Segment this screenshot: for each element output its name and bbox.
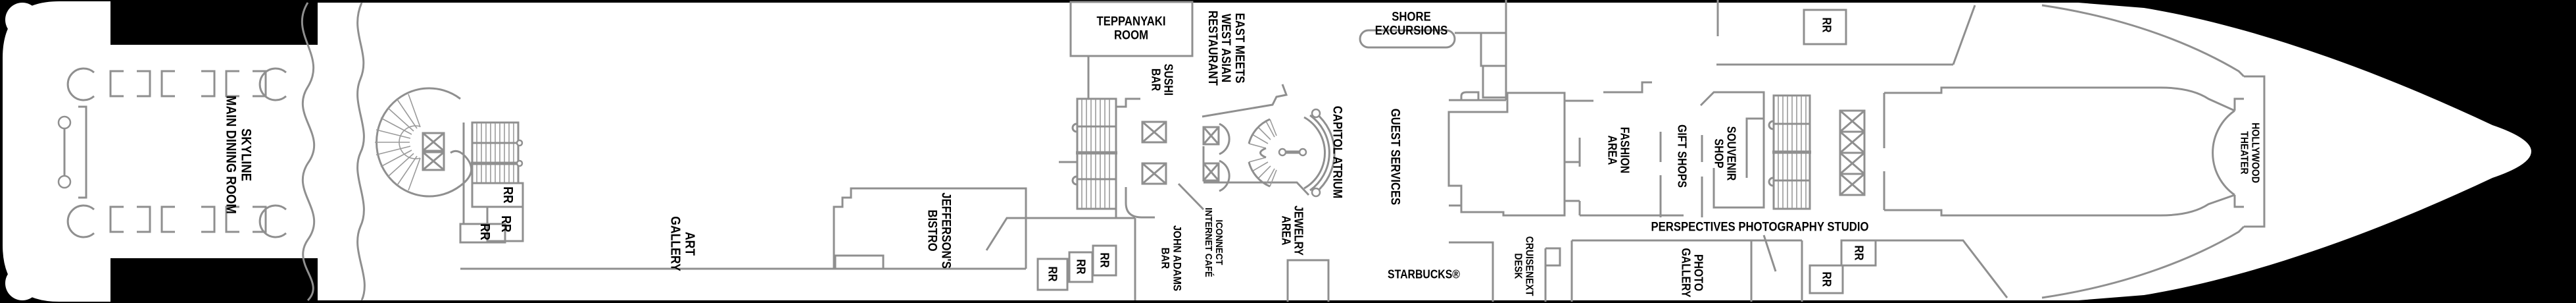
label-souvenir-shop: SOUVENIRSHOP	[1712, 126, 1738, 181]
buffet-end	[59, 176, 70, 188]
label-fashion-area: FASHIONAREA	[1605, 127, 1631, 173]
label-art-gallery: ARTGALLERY	[668, 216, 696, 271]
label-iconnect-internet-cafe: ICONNECTINTERNET CAFÉ	[1203, 207, 1224, 277]
label-restroom: RR	[1098, 253, 1110, 268]
label-jewelry-area: JEWELRYAREA	[1279, 206, 1305, 256]
label-teppanyaki-room: TEPPANYAKIROOM	[1097, 15, 1166, 42]
label-starbucks: STARBUCKS®	[1388, 268, 1460, 281]
label-restroom: RR	[498, 215, 512, 232]
label-john-adams-bar: JOHN ADAMSBAR	[1159, 225, 1183, 291]
label-restroom: RR	[1074, 260, 1086, 275]
label-restroom: RR	[500, 186, 514, 203]
label-shore-excursions: SHOREEXCURSIONS	[1375, 11, 1448, 38]
label-restroom: RR	[1820, 272, 1832, 287]
label-capitol-atrium: CAPITOL ATRIUM	[1330, 106, 1344, 199]
deck-plan-drawing	[0, 0, 2576, 303]
label-jeffersons-bistro: JEFFERSON'SBISTRO	[925, 192, 952, 268]
label-hollywood-theater: HOLLYWOODTHEATER	[2238, 123, 2261, 183]
label-restroom: RR	[1820, 18, 1832, 33]
label-gift-shops: GIFT SHOPS	[1675, 124, 1688, 188]
deck-plan: SKYLINEMAIN DINING ROOM RR RR RR ARTGALL…	[0, 0, 2576, 303]
label-restroom: RR	[1852, 246, 1864, 261]
label-east-meets-west-asian-restaurant: EAST MEETSWEST ASIANRESTAURANT	[1205, 11, 1246, 86]
label-skyline-main-dining-room: SKYLINEMAIN DINING ROOM	[223, 96, 253, 214]
label-restroom: RR	[1046, 267, 1058, 282]
buffet-end	[59, 117, 70, 128]
label-perspectives-photography-studio: PERSPECTIVES PHOTOGRAPHY STUDIO	[1651, 221, 1868, 235]
label-cruisenext-desk: CRUISENEXTDESK	[1512, 236, 1535, 296]
label-guest-services: GUEST SERVICES	[1388, 109, 1401, 206]
ship-hull	[3, 1, 2531, 302]
label-sushi-bar: SUSHIBAR	[1149, 64, 1175, 96]
label-restroom: RR	[477, 223, 491, 240]
label-photo-gallery: PHOTOGALLERY	[1679, 248, 1705, 297]
